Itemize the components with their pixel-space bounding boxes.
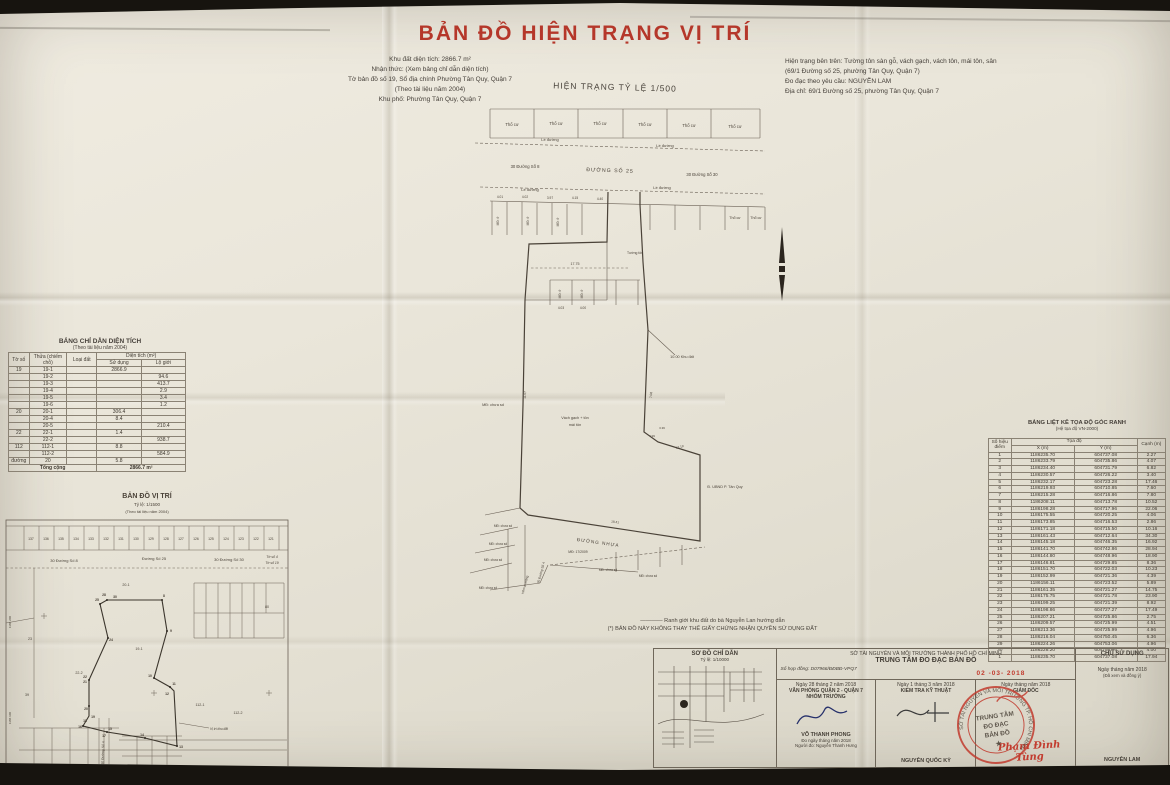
grid-label: 604 650 [49, 776, 60, 780]
table-cell: 7.80 [1137, 493, 1165, 500]
dim-label: 4.03 [558, 306, 564, 310]
strip-number: 124 [223, 537, 229, 541]
table-row: 2020-1306.4 [9, 409, 186, 416]
table-cell [97, 437, 142, 444]
table-cell: 21 [989, 587, 1012, 594]
road-edge-label: Lề đường [656, 143, 674, 148]
table-cell [97, 374, 142, 381]
owner-title: CHỦ SỬ DỤNG [1076, 649, 1168, 657]
lot-number: 39 [25, 693, 29, 697]
note-line: (*) BẢN ĐỒ NÀY KHÔNG THAY THẾ GIẤY CHỨNG… [540, 625, 885, 633]
table-cell [141, 367, 185, 374]
table-cell: 604715.50 [1074, 526, 1137, 533]
index-sketch-title: SƠ ĐỒ CHỈ DẪN [654, 649, 776, 657]
table-cell: 13 [989, 533, 1012, 540]
table-cell [67, 367, 97, 374]
table-cell [67, 458, 97, 465]
table-cell: 1186230.57 [1011, 472, 1074, 479]
lot-label: Thổ cư [728, 124, 741, 129]
point-label: 16 [78, 725, 82, 729]
strip-number: 134 [73, 537, 79, 541]
table-cell: 25 [989, 614, 1012, 621]
table-cell: 1186216.04 [1011, 634, 1074, 641]
table-cell: 6.82 [1137, 466, 1165, 473]
table-cell: 9 [989, 506, 1012, 513]
strip-number: 121 [268, 537, 274, 541]
sheet-label: Tờ số 19 [265, 561, 278, 565]
grid-label: 1186 200 [8, 616, 12, 629]
dim-label: 4.02 [522, 195, 528, 199]
coord-table-head: Số hiệu điểm Tọa độ Cạnh (m) X (m) Y (m) [989, 439, 1166, 453]
info-line: Khu đất diện tích: 2866.7 m² [325, 55, 535, 65]
table-cell: 17 [989, 560, 1012, 567]
table-cell: 604750.45 [1074, 634, 1137, 641]
dim-label: 17.75 [571, 262, 580, 266]
landmark-label: Đ. UBND P. Tân Quy [707, 485, 742, 489]
paper-sheet: BẢN ĐỒ HIỆN TRẠNG VỊ TRÍ Khu đất diện tí… [0, 0, 1170, 785]
index-sketch-cell: SƠ ĐỒ CHỈ DẪN Tỷ lệ: 1/10000 [654, 649, 777, 767]
table-row: 21186233.79604735.864.07 [989, 459, 1166, 466]
table-cell: 604713.78 [1074, 499, 1137, 506]
table-cell: 24 [989, 607, 1012, 614]
table-row: 11186235.70604737.082.27 [989, 452, 1166, 459]
table-cell: 15 [989, 547, 1012, 554]
table-cell: 2.27 [1137, 452, 1165, 459]
lot-use-label: MĐ: 17/2009 [568, 550, 588, 554]
table-cell: 28.94 [1137, 547, 1165, 554]
road-edge-label: Lề đường [653, 185, 671, 190]
strip-number: 136 [43, 537, 49, 541]
table-cell: 22 [9, 430, 30, 437]
table-cell [9, 402, 30, 409]
lot-number: 23 [28, 637, 32, 641]
table-cell: 19-2 [29, 374, 67, 381]
location-map-source: (Theo tài liệu năm 2004) [125, 509, 169, 514]
table-row: 31186234.40604731.796.82 [989, 466, 1166, 473]
table-cell [141, 416, 185, 423]
table-cell: 8.36 [1137, 560, 1165, 567]
table-cell: 1186208.11 [1011, 499, 1074, 506]
agency-header: SỞ TÀI NGUYÊN VÀ MÔI TRƯỜNG THÀNH PHỐ HỒ… [777, 649, 1076, 680]
table-row: 19-61.2 [9, 402, 186, 409]
table-cell: 94.6 [141, 374, 185, 381]
location-map-titles: BẢN ĐỒ VỊ TRÍ Tỷ lệ: 1/1500 (Theo tài li… [122, 490, 172, 514]
table-cell: 1186235.70 [1011, 452, 1074, 459]
table-row: 251186207.21604725.862.75 [989, 614, 1166, 621]
table-cell: 11 [989, 520, 1012, 527]
table-cell: 604725.99 [1074, 628, 1137, 635]
table-cell: 112-2 [29, 451, 67, 458]
table-cell [9, 437, 30, 444]
road-label: ĐƯỜNG NHỰA [577, 536, 620, 548]
table-cell: 604731.79 [1074, 466, 1137, 473]
table-cell: 20 [989, 580, 1012, 587]
table-cell: 413.7 [141, 381, 185, 388]
table-cell: 1186233.79 [1011, 459, 1074, 466]
table-row: 201186156.11604723.525.89 [989, 580, 1166, 587]
signer-col-director: Ngày tháng năm 2018 GIÁM ĐỐC Phạm Đình T… [976, 680, 1075, 767]
location-parcel-points [82, 599, 178, 747]
strip-number: 125 [208, 537, 214, 541]
table-cell: 20-4 [29, 416, 67, 423]
table-row: 131186161.43604712.6434.30 [989, 533, 1166, 540]
table-cell: 112 [9, 444, 30, 451]
table-cell: 1186161.43 [1011, 533, 1074, 540]
table-cell: 1186175.55 [1011, 513, 1074, 520]
col-header: Tọa độ [1011, 439, 1137, 446]
table-cell: 1186224.26 [1011, 641, 1074, 648]
signature-vo-thanh-phong [791, 700, 861, 730]
table-cell: 19 [989, 574, 1012, 581]
table-cell: 12 [989, 526, 1012, 533]
table-row: 101186175.55604720.254.06 [989, 513, 1166, 520]
location-map-title: BẢN ĐỒ VỊ TRÍ [122, 490, 172, 500]
table-cell: 1186198.28 [1011, 506, 1074, 513]
table-cell: 20-1 [29, 409, 67, 416]
table-cell: 1186175.75 [1011, 594, 1074, 601]
table-cell: 1186152.99 [1011, 574, 1074, 581]
table-cell: 18 [989, 567, 1012, 574]
coord-table: Số hiệu điểm Tọa độ Cạnh (m) X (m) Y (m)… [988, 438, 1166, 662]
dim-label: 4.99 [649, 434, 655, 438]
info-line: (Theo tài liệu năm 2004) [325, 85, 535, 95]
table-cell: 1186173.85 [1011, 520, 1074, 527]
table-cell: 3.40 [1137, 472, 1165, 479]
scanned-map-page: BẢN ĐỒ HIỆN TRẠNG VỊ TRÍ Khu đất diện tí… [0, 0, 1170, 785]
note-line: ———— Ranh giới khu đất do bà Nguyễn Lan … [540, 617, 885, 625]
strip-number: 130 [133, 537, 139, 541]
table-cell [67, 437, 97, 444]
table-cell: 19-6 [29, 402, 67, 409]
table-cell: 8.8 [97, 444, 142, 451]
main-survey-map: Thổ cư Thổ cư Thổ cư Thổ cư Thổ cư Thổ c… [430, 95, 880, 645]
area-table: Tờ số Thửa (chiếm chỗ) Loại đất Diện tíc… [8, 352, 186, 472]
measurer-name: Người đo: Nguyễn Thanh Hưng [777, 743, 876, 748]
table-cell [67, 423, 97, 430]
dim-label: 7.08 [649, 392, 653, 399]
point-label: 9 [170, 629, 172, 633]
north-arrow-icon [779, 227, 785, 301]
table-cell: 604717.96 [1074, 506, 1137, 513]
table-cell: 112-1 [29, 444, 67, 451]
signature-nguyen-quoc-ky [891, 694, 961, 734]
lot-use-label: MĐ: ở [558, 290, 562, 299]
coord-table-subtitle: (Hệ tọa độ VN-2000) [988, 426, 1166, 431]
table-cell: 1186207.21 [1011, 614, 1074, 621]
dim-label: 4.40 [597, 197, 603, 201]
dim-label: 4.01 [497, 195, 503, 199]
road-label: Đường Số 25 [142, 556, 167, 561]
table-row: 51186232.17604723.2817.46 [989, 479, 1166, 486]
table-cell: 1186145.18 [1011, 540, 1074, 547]
table-cell: 10.52 [1137, 499, 1165, 506]
table-row: 211186161.35604721.2714.75 [989, 587, 1166, 594]
table-cell: 4.51 [1137, 621, 1165, 628]
col-header: Sử dụng [97, 360, 142, 367]
table-cell: 604716.53 [1074, 520, 1137, 527]
point-label: 24 [109, 638, 113, 642]
col-header: Lộ giới [141, 360, 185, 367]
table-cell: 20 [29, 458, 67, 465]
table-cell [97, 381, 142, 388]
table-row: 22-2938.7 [9, 437, 186, 444]
table-cell: 19-3 [29, 381, 67, 388]
table-cell [9, 423, 30, 430]
table-cell: 34.30 [1137, 533, 1165, 540]
table-cell: 1186234.40 [1011, 466, 1074, 473]
table-row: 121186171.18604715.5010.16 [989, 526, 1166, 533]
table-cell: 20 [9, 409, 30, 416]
table-cell: 22.06 [1137, 506, 1165, 513]
lot-number: 112-2 [234, 711, 243, 715]
dim-label: 11.07 [523, 391, 527, 399]
location-road-labels: 30 Đường Số 8 Đường Số 25 30 Đường Số 30… [50, 555, 279, 765]
road-label: 30 Đường Số 30 [214, 557, 245, 562]
table-cell [67, 381, 97, 388]
table-row: đường205.8 [9, 458, 186, 465]
parcel-boundary [520, 192, 700, 541]
lot-label: Thổ cư [505, 122, 518, 127]
area-table-head: Tờ số Thửa (chiếm chỗ) Loại đất Diện tíc… [9, 353, 186, 367]
table-cell: 22-2 [29, 437, 67, 444]
table-row: 241186198.86604727.2717.49 [989, 607, 1166, 614]
point-label: 21 [83, 680, 87, 684]
lot-use-label: MĐ: ở [526, 217, 530, 226]
table-row: 191186152.99604721.364.39 [989, 574, 1166, 581]
point-label: 15 [108, 727, 112, 731]
lot-use-label: MĐ: chưa sd [479, 586, 497, 590]
table-cell: 210.4 [141, 423, 185, 430]
table-cell: 17.49 [1137, 607, 1165, 614]
table-cell [141, 458, 185, 465]
table-cell: 8.92 [1137, 601, 1165, 608]
lot-label: Thổ cư [638, 122, 651, 127]
point-label: 25 [95, 598, 99, 602]
table-cell: 10.16 [1137, 526, 1165, 533]
table-cell: 4 [989, 472, 1012, 479]
table-cell: 1186146.81 [1011, 560, 1074, 567]
location-lot-labels: 20-1 19-1 22-2 23 39 112-1 112-2 80 Vị t… [25, 583, 269, 731]
table-row: 271186213.36604725.994.96 [989, 628, 1166, 635]
point-label: 10 [148, 674, 152, 678]
area-table-title-text: BẢNG CHỈ DẪN DIỆN TÍCH [20, 338, 180, 345]
table-cell: 604735.86 [1074, 459, 1137, 466]
wall-label: Tường tôn [627, 251, 643, 255]
table-row: 171186146.81604729.858.36 [989, 560, 1166, 567]
strip-number: 128 [163, 537, 169, 541]
location-point-labels: 8 9 10 11 12 13 14 15 16 17 18 19 20 21 … [78, 593, 183, 749]
table-cell [67, 416, 97, 423]
info-line: Nhận thức: (Xem bảng chỉ dẫn diện tích) [325, 65, 535, 75]
table-cell: 8 [989, 499, 1012, 506]
table-cell: 604726.22 [1074, 472, 1137, 479]
agency-cell: SỞ TÀI NGUYÊN VÀ MÔI TRƯỜNG THÀNH PHỐ HỒ… [777, 649, 1077, 767]
table-row: 19-42.9 [9, 388, 186, 395]
date-stamp: 02 -03- 2018 [977, 670, 1026, 677]
table-row: 19-53.4 [9, 395, 186, 402]
table-cell: 1186199.25 [1011, 601, 1074, 608]
lot-number: 112-1 [196, 703, 205, 707]
parcel-callout: Vị trí khu đất [210, 727, 228, 731]
table-cell: 7 [989, 493, 1012, 500]
lot-label: Thổ cư [682, 123, 695, 128]
total-label: Tổng cộng [9, 465, 97, 472]
table-cell [9, 381, 30, 388]
location-map: BẢN ĐỒ VỊ TRÍ Tỷ lệ: 1/1500 (Theo tài li… [4, 488, 290, 780]
table-cell: 1186198.86 [1011, 607, 1074, 614]
table-cell: 604737.08 [1074, 452, 1137, 459]
table-cell [97, 451, 142, 458]
table-cell: 19 [9, 367, 30, 374]
table-cell: 3 [989, 466, 1012, 473]
strip-number: 126 [193, 537, 199, 541]
location-grid-labels: 1186 200 1186 100 604 650 604 700 604 75… [8, 616, 268, 780]
map-lines [470, 109, 765, 591]
table-cell [9, 416, 30, 423]
table-cell: 4.96 [1137, 641, 1165, 648]
strip-number: 127 [178, 537, 184, 541]
structure-label: mái tôn [569, 423, 581, 427]
table-cell: 604723.28 [1074, 479, 1137, 486]
table-cell: 4.06 [1137, 513, 1165, 520]
road-label: 30 Đường Số 30 [686, 172, 718, 177]
road-edge-label: Lề đường [521, 187, 539, 192]
total-value: 2866.7 m² [97, 465, 186, 472]
table-cell: 1186151.70 [1011, 567, 1074, 574]
table-cell: 938.7 [141, 437, 185, 444]
lot-use-label: MĐ: chưa sd [489, 542, 507, 546]
table-row: 221186175.75604721.7823.90 [989, 594, 1166, 601]
area-table-subtitle: (Theo tài liệu năm 2004) [20, 345, 180, 351]
area-table-foot: Tổng cộng 2866.7 m² [9, 465, 186, 472]
dim-label: 18.41 [611, 519, 620, 524]
table-cell: 1186161.35 [1011, 587, 1074, 594]
strip-number: 129 [148, 537, 154, 541]
table-cell: 6 [989, 486, 1012, 493]
agency-org: TRUNG TÂM ĐO ĐẠC BẢN ĐỒ [777, 657, 1076, 664]
table-cell: 1186144.80 [1011, 553, 1074, 560]
table-cell: 1186219.93 [1011, 486, 1074, 493]
table-cell: 14 [989, 540, 1012, 547]
map-labels: Thổ cư Thổ cư Thổ cư Thổ cư Thổ cư Thổ c… [479, 121, 762, 594]
crease-vertical [382, 0, 398, 785]
table-cell: 7.60 [1137, 486, 1165, 493]
strip-number: 133 [88, 537, 94, 541]
signature-pham-dinh-tung: Phạm Đình Tùng [984, 739, 1076, 766]
point-label: 14 [140, 733, 144, 737]
table-cell: 29 [989, 641, 1012, 648]
table-cell: 604727.27 [1074, 607, 1137, 614]
table-cell: 604723.52 [1074, 580, 1137, 587]
lot-label: Thổ cư [593, 121, 606, 126]
table-cell: 604722.03 [1074, 567, 1137, 574]
lot-use-label: MĐ: chưa sd [599, 568, 617, 572]
table-cell: đường [9, 458, 30, 465]
strip-number: 137 [28, 537, 34, 541]
table-cell: 19-1 [29, 367, 67, 374]
col-header: Thửa (chiếm chỗ) [29, 353, 67, 367]
info-line: Đo đạc theo yêu cầu: NGUYỄN LAM [785, 77, 1075, 87]
table-cell: 16.92 [1137, 540, 1165, 547]
page-title: BẢN ĐỒ HIỆN TRẠNG VỊ TRÍ [0, 22, 1170, 46]
table-cell [97, 423, 142, 430]
parcel-label: 10.00 Khu đất [670, 355, 695, 359]
lot-use-label: MĐ: chưa sd [494, 524, 512, 528]
table-row: 61186219.93604710.857.60 [989, 486, 1166, 493]
grid-label: 604 700 [149, 776, 160, 780]
table-cell: 604725.99 [1074, 621, 1137, 628]
table-cell: 1186209.57 [1011, 621, 1074, 628]
table-cell: 17.46 [1137, 479, 1165, 486]
col-header: Cạnh (m) [1137, 439, 1165, 453]
lot-number: 80 [265, 605, 269, 609]
table-cell: 5.8 [97, 458, 142, 465]
table-row: 19-3413.7 [9, 381, 186, 388]
dim-label: 4.15 [572, 196, 578, 200]
dim-label: 3.97 [547, 196, 553, 200]
point-label: 13 [179, 745, 183, 749]
table-cell [9, 451, 30, 458]
table-cell: 1186141.70 [1011, 547, 1074, 554]
map-scale-label: HIỆN TRẠNG TỶ LỆ 1/500 [505, 79, 725, 95]
road-label: 30 Đường Số 8 [50, 558, 78, 563]
col-header: Tờ số [9, 353, 30, 367]
table-cell: 16 [989, 553, 1012, 560]
table-cell: 14.75 [1137, 587, 1165, 594]
table-row: 261186209.57604725.994.51 [989, 621, 1166, 628]
table-cell: 604712.64 [1074, 533, 1137, 540]
table-row: 141186145.18604746.3516.92 [989, 540, 1166, 547]
table-cell: 604716.86 [1074, 493, 1137, 500]
col-header: Diện tích (m²) [97, 353, 186, 360]
table-cell [67, 402, 97, 409]
table-row: 20-48.4 [9, 416, 186, 423]
table-cell: 604721.39 [1074, 601, 1137, 608]
table-cell [9, 395, 30, 402]
table-cell: 18.90 [1137, 553, 1165, 560]
signer-columns: Ngày 28 tháng 2 năm 2018 VĂN PHÒNG QUẬN … [777, 680, 1076, 767]
point-label: 17 [102, 734, 106, 738]
table-cell: 604720.25 [1074, 513, 1137, 520]
sheet-label: Tờ số 4 [266, 555, 278, 559]
location-strip-numbers: 137 136 135 134 133 132 131 130 129 128 … [28, 537, 274, 541]
table-cell: 604721.78 [1074, 594, 1137, 601]
table-cell: 1.2 [141, 402, 185, 409]
table-row: 81186208.11604713.7810.52 [989, 499, 1166, 506]
dim-label: 3.36 [659, 426, 665, 430]
col-header: Loại đất [67, 353, 97, 367]
table-cell [67, 409, 97, 416]
table-cell [67, 451, 97, 458]
lot-use-label: MĐ: chưa sd [482, 403, 504, 407]
table-cell [97, 388, 142, 395]
point-label: 28 [102, 593, 106, 597]
table-cell: 2.75 [1137, 614, 1165, 621]
table-row: 111186173.85604716.532.86 [989, 520, 1166, 527]
table-cell: 22-1 [29, 430, 67, 437]
signature-block: SƠ ĐỒ CHỈ DẪN Tỷ lệ: 1/10000 SỞ TÀI NGUY… [653, 648, 1169, 768]
point-label: 12 [165, 692, 169, 696]
road-label: ĐƯỜNG SỐ 25 [586, 166, 634, 175]
col-header: Số hiệu điểm [989, 439, 1012, 453]
table-cell: 604725.86 [1074, 614, 1137, 621]
agency-dept: SỞ TÀI NGUYÊN VÀ MÔI TRƯỜNG THÀNH PHỐ HỒ… [777, 649, 1076, 657]
table-cell: 26 [989, 621, 1012, 628]
table-cell: 28 [989, 634, 1012, 641]
table-row: 19-294.6 [9, 374, 186, 381]
table-row: 281186216.04604750.456.36 [989, 634, 1166, 641]
table-row: 112112-18.8 [9, 444, 186, 451]
